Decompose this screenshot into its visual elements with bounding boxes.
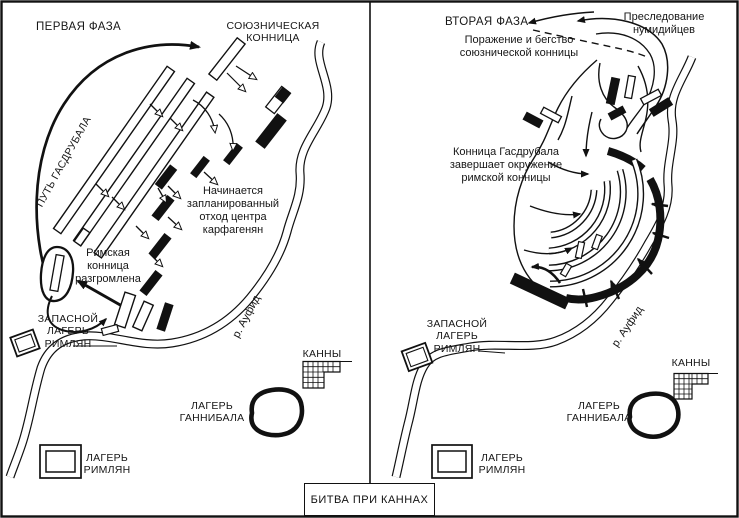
cannae-town-symbol-right [674,374,718,400]
encirclement-note: Конница Гасдрубала завершает окружение р… [450,146,562,185]
phase2-drawing [396,12,718,478]
roman-camp-label-right: ЛАГЕРЬ РИМЛЯН [479,452,526,477]
roman-camp-symbol-left [40,445,81,478]
hannibal-camp-symbol-left [251,390,302,436]
allied-cavalry-label: СОЮЗНИЧЕСКАЯ КОННИЦА [227,20,320,45]
roman-cavalry-defeated-note: Римская конница разгромлена [75,247,141,286]
reserve-camp-symbol-left [10,329,39,356]
hannibal-camp-symbol-right [629,394,678,437]
reserve-camp-label-left: ЗАПАСНОЙ ЛАГЕРЬ РИМЛЯН [38,313,98,350]
cannae-town-symbol-left [303,362,352,389]
map-caption: БИТВА ПРИ КАННАХ [311,494,429,506]
cannae-label-right: КАННЫ [672,357,711,369]
phase1-title: ПЕРВАЯ ФАЗА [36,21,121,35]
allied-cavalry-flight-note: Поражение и бегство союзнической конницы [460,34,578,60]
roman-camp-label-left: ЛАГЕРЬ РИМЛЯН [84,452,131,477]
numidian-pursuit-note: Преследование нумидийцев [624,11,705,37]
phase2-title: ВТОРАЯ ФАЗА [445,16,528,30]
cannae-battle-map: ПЕРВАЯ ФАЗА СОЮЗНИЧЕСКАЯ КОННИЦА ПУТЬ ГА… [0,0,739,518]
allied-cavalry-unit [209,38,256,91]
roman-camp-symbol-right [432,445,472,478]
centre-retreat-note: Начинается запланированный отход центра … [187,185,279,237]
cannae-label-left: КАННЫ [303,348,342,360]
map-caption-box: БИТВА ПРИ КАННАХ [304,483,435,516]
compressed-roman-arcs [549,160,641,284]
hannibal-camp-label-left: ЛАГЕРЬ ГАННИБАЛА [180,400,245,425]
reserve-camp-label-right: ЗАПАСНОЙ ЛАГЕРЬ РИМЛЯН [427,318,487,355]
hannibal-camp-label-right: ЛАГЕРЬ ГАННИБАЛА [567,400,632,425]
